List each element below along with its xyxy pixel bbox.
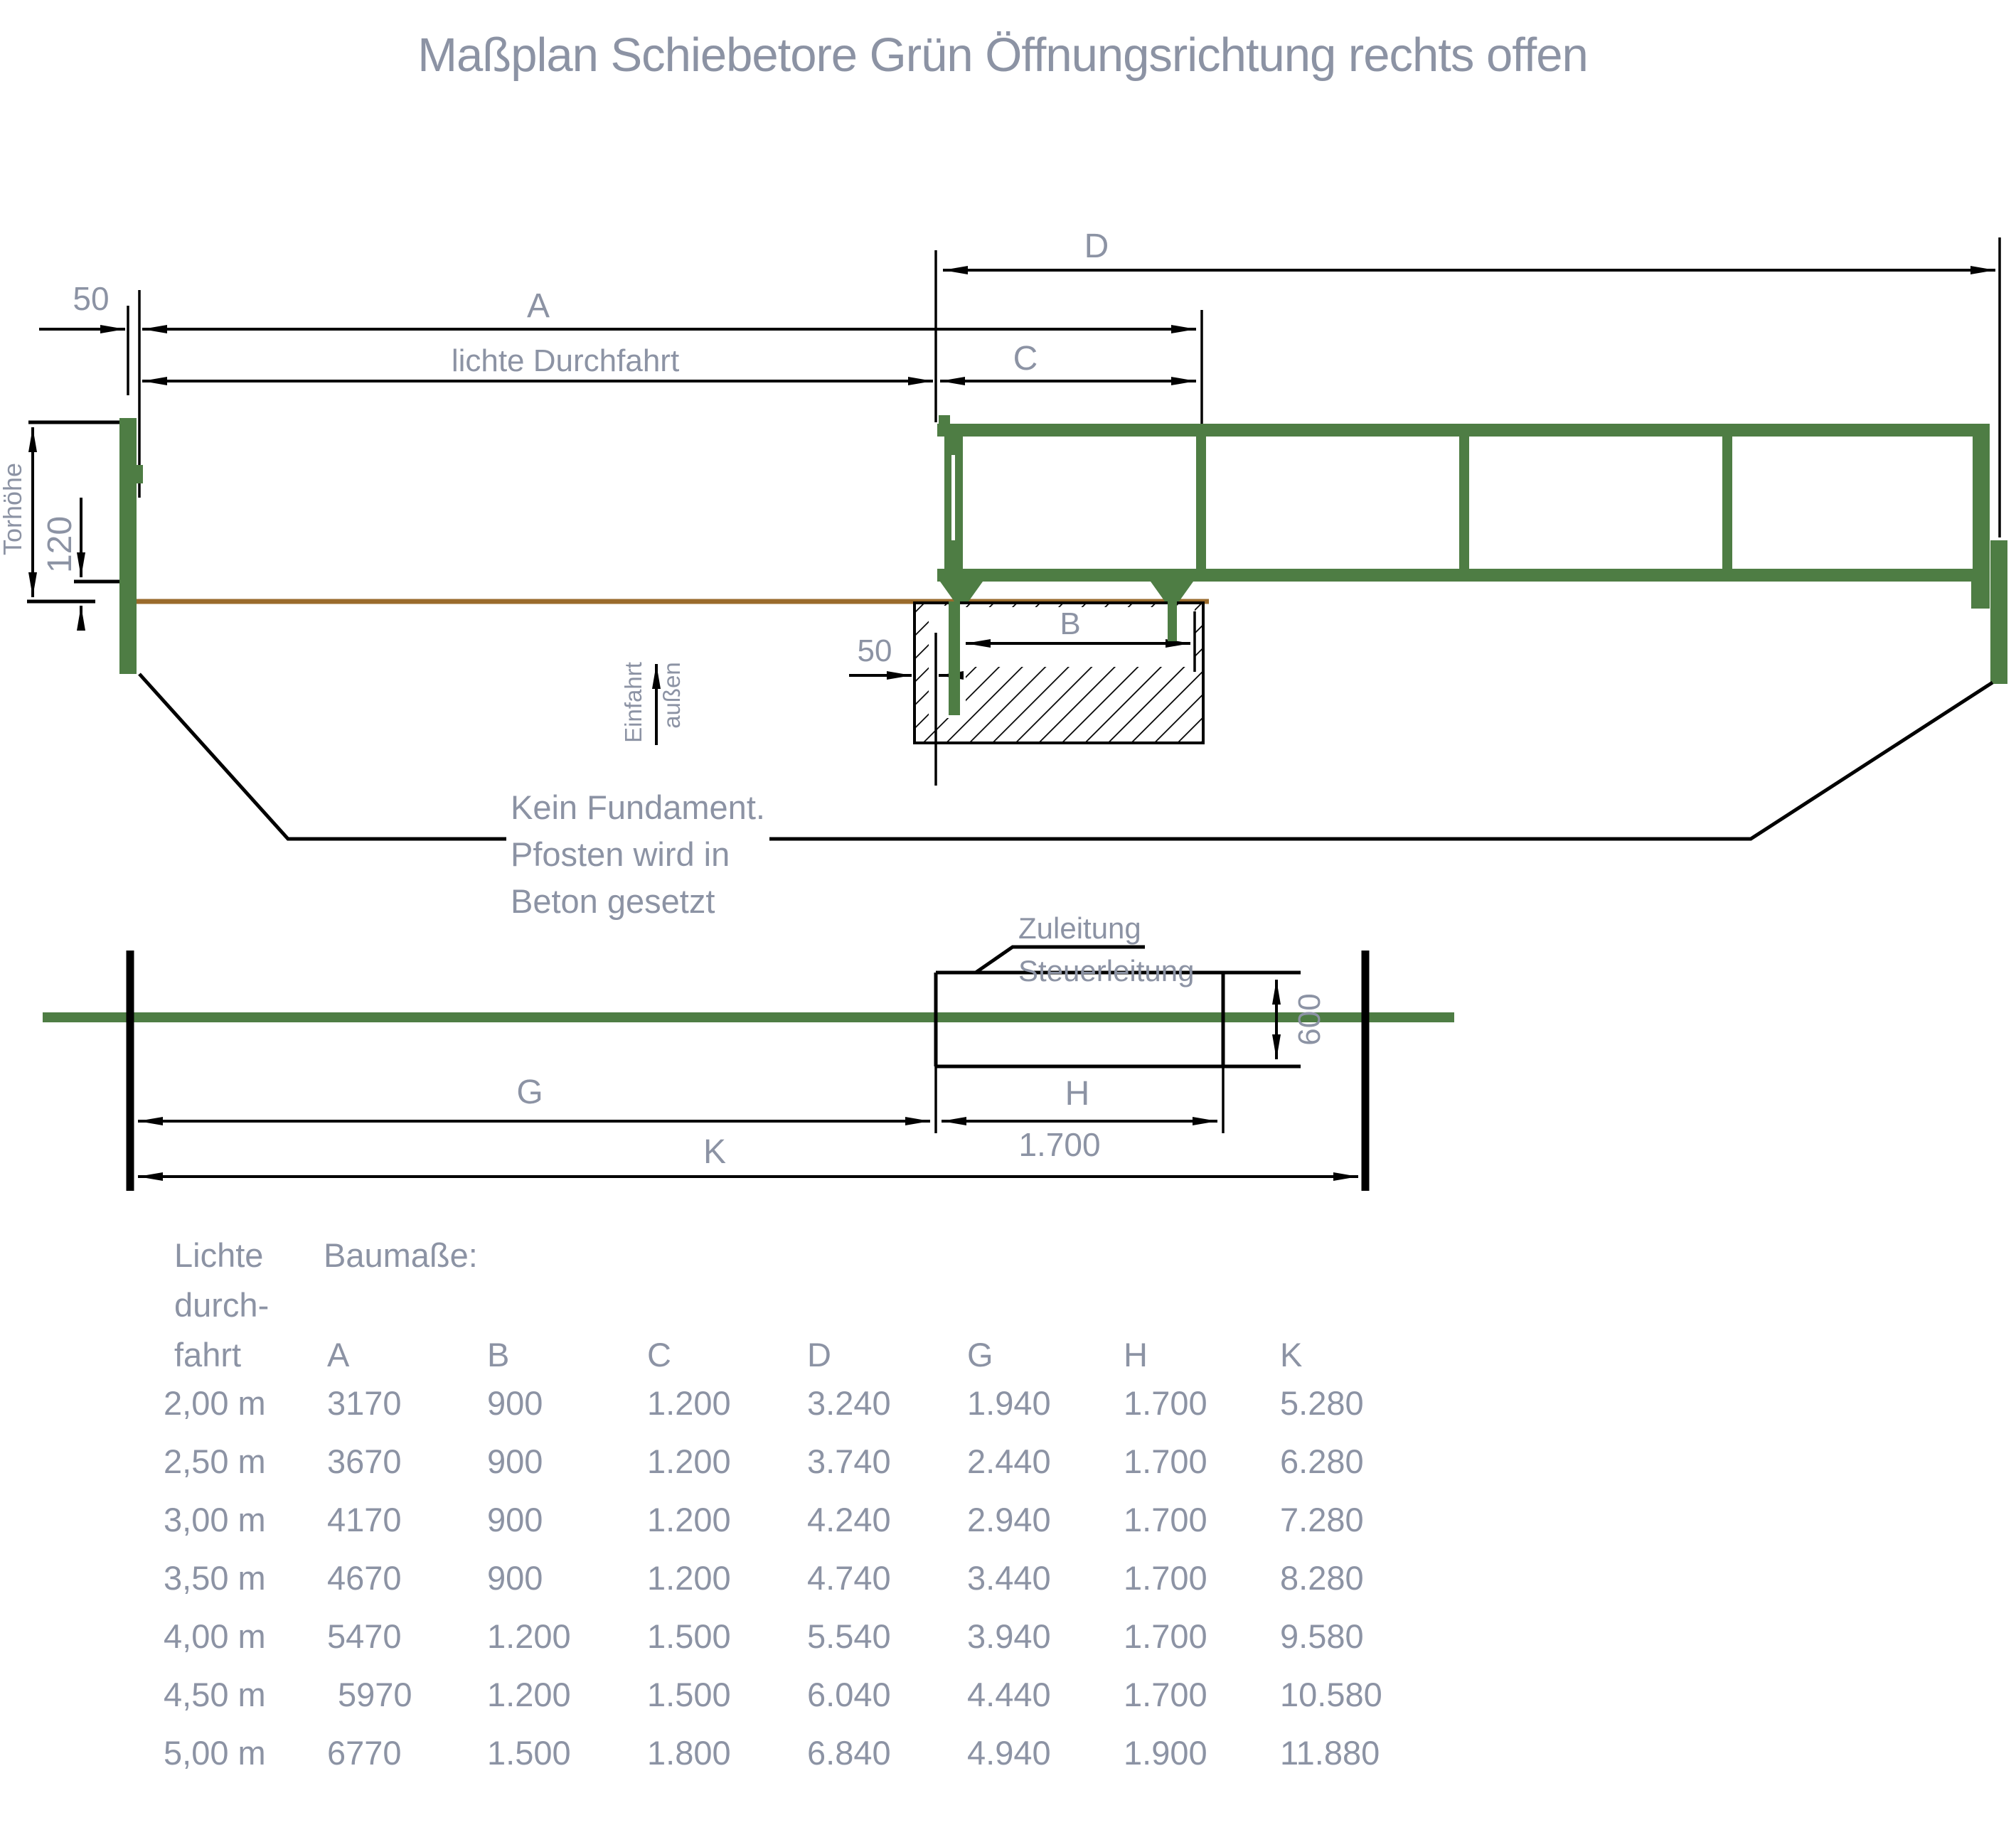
dim-label-50-post: 50 — [73, 280, 109, 317]
cell: 4670 — [327, 1559, 402, 1597]
cell: 1.700 — [1124, 1501, 1207, 1538]
gate-left-cap — [939, 415, 950, 425]
cell: 3.240 — [807, 1384, 891, 1422]
cell: 4.440 — [967, 1676, 1051, 1713]
gate-divider-1 — [1196, 437, 1206, 569]
cell: 3,50 m — [164, 1559, 266, 1597]
cell: 1.200 — [487, 1617, 571, 1655]
table-row: 3,00 m 4170 900 1.200 4.240 2.940 1.700 … — [164, 1501, 1364, 1538]
cell: 900 — [487, 1501, 543, 1538]
table-row-header-1: Lichte — [174, 1236, 263, 1274]
cell: 1.800 — [647, 1734, 731, 1772]
dim-label-g: G — [516, 1074, 543, 1111]
gate-bottom-rail — [937, 569, 1990, 582]
dim-label-c: C — [1013, 340, 1038, 378]
cell: 3,00 m — [164, 1501, 266, 1538]
plan-view: Zuleitung Steuerleitung 600 G H 1.700 K — [43, 911, 1454, 1191]
label-einfahrt: Einfahrt — [620, 662, 646, 743]
cell: 5,00 m — [164, 1734, 266, 1772]
gate-left-foot — [940, 582, 983, 601]
side-view: D 50 A lichte Durchfahrt C Torhöhe 120 — [0, 227, 2007, 920]
table-col-b: B — [487, 1336, 509, 1374]
cell: 1.700 — [1124, 1559, 1207, 1597]
cell: 2,50 m — [164, 1442, 266, 1480]
cell: 8.280 — [1280, 1559, 1364, 1597]
table-row: 3,50 m 4670 900 1.200 4.740 3.440 1.700 … — [164, 1559, 1364, 1597]
left-guide-post — [119, 418, 137, 674]
cell: 900 — [487, 1384, 543, 1422]
table-col-c: C — [647, 1336, 671, 1374]
gate-divider-2 — [1459, 437, 1469, 569]
dim-label-a: A — [527, 287, 550, 325]
dim-label-clear-width: lichte Durchfahrt — [452, 343, 679, 378]
cell: 1.700 — [1124, 1442, 1207, 1480]
cell: 4.740 — [807, 1559, 891, 1597]
label-steuerleitung: Steuerleitung — [1018, 954, 1195, 987]
dimension-plan-drawing: Maßplan Schiebetore Grün Öffnungsrichtun… — [0, 0, 2016, 1847]
gate-top-rail — [937, 424, 1990, 437]
cell: 1.200 — [647, 1442, 731, 1480]
cell: 9.580 — [1280, 1617, 1364, 1655]
cell: 6.280 — [1280, 1442, 1364, 1480]
cell: 1.200 — [647, 1384, 731, 1422]
table-row: 5,00 m 6770 1.500 1.800 6.840 4.940 1.90… — [164, 1734, 1380, 1772]
cell: 1.500 — [487, 1734, 571, 1772]
table-row: 4,00 m 5470 1.200 1.500 5.540 3.940 1.70… — [164, 1617, 1364, 1655]
table-col-k: K — [1280, 1336, 1302, 1374]
catch-post — [1990, 540, 2007, 684]
dim-label-h: H — [1065, 1075, 1090, 1113]
gate-left-rod — [949, 601, 960, 715]
table-col-g: G — [967, 1336, 993, 1374]
dim-label-600: 600 — [1292, 993, 1327, 1045]
gate-drive-foot — [1151, 582, 1193, 601]
cell: 5470 — [327, 1617, 402, 1655]
table-row: 2,00 m 3170 900 1.200 3.240 1.940 1.700 … — [164, 1384, 1364, 1422]
table-col-a: A — [327, 1336, 350, 1374]
table-row: 4,50 m 5970 1.200 1.500 6.040 4.440 1.70… — [164, 1676, 1382, 1713]
dim-label-h-value: 1.700 — [1018, 1126, 1100, 1163]
cell: 7.280 — [1280, 1501, 1364, 1538]
cell: 4170 — [327, 1501, 402, 1538]
dim-label-k: K — [703, 1133, 726, 1171]
cell: 1.200 — [487, 1676, 571, 1713]
cell: 3170 — [327, 1384, 402, 1422]
cell: 2.440 — [967, 1442, 1051, 1480]
cell: 900 — [487, 1442, 543, 1480]
gate-drive-rod — [1168, 601, 1177, 641]
table-row: 2,50 m 3670 900 1.200 3.740 2.440 1.700 … — [164, 1442, 1364, 1480]
cell: 1.700 — [1124, 1676, 1207, 1713]
cell: 6770 — [327, 1734, 402, 1772]
cell: 6.840 — [807, 1734, 891, 1772]
cell: 2,00 m — [164, 1384, 266, 1422]
page-title: Maßplan Schiebetore Grün Öffnungsrichtun… — [417, 28, 1588, 82]
cell: 4.940 — [967, 1734, 1051, 1772]
cell: 1.900 — [1124, 1734, 1207, 1772]
label-zuleitung: Zuleitung — [1018, 911, 1141, 945]
table-group-header: Baumaße: — [324, 1236, 478, 1274]
gate-right-upright — [1973, 424, 1990, 582]
table-col-d: D — [807, 1336, 831, 1374]
dim-label-d: D — [1084, 227, 1109, 265]
note-line-1: Kein Fundament. — [511, 788, 765, 826]
dimension-plan-page: Maßplan Schiebetore Grün Öffnungsrichtun… — [0, 0, 2016, 1847]
cell: 10.580 — [1280, 1676, 1382, 1713]
cell: 4,50 m — [164, 1676, 266, 1713]
cell: 3.940 — [967, 1617, 1051, 1655]
cell: 3670 — [327, 1442, 402, 1480]
cell: 3.440 — [967, 1559, 1051, 1597]
cell: 4.240 — [807, 1501, 891, 1538]
cell: 1.700 — [1124, 1617, 1207, 1655]
plan-gate-line — [43, 1012, 1454, 1022]
gate-end-stop — [1971, 582, 1990, 609]
note-line-3: Beton gesetzt — [511, 882, 715, 920]
cell: 1.500 — [647, 1676, 731, 1713]
cell: 6.040 — [807, 1676, 891, 1713]
note-line-2: Pfosten wird in — [511, 835, 730, 873]
cell: 1.200 — [647, 1559, 731, 1597]
table-row-header-2: durch- — [174, 1286, 269, 1324]
cell: 2.940 — [967, 1501, 1051, 1538]
cell: 5.540 — [807, 1617, 891, 1655]
dim-label-b: B — [1060, 606, 1080, 641]
cell: 900 — [487, 1559, 543, 1597]
left-post-latch — [137, 465, 143, 483]
gate-divider-3 — [1722, 437, 1732, 569]
cell: 1.700 — [1124, 1384, 1207, 1422]
dim-label-ground-clearance: 120 — [41, 516, 79, 573]
table-col-h: H — [1124, 1336, 1148, 1374]
cell: 5970 — [338, 1676, 412, 1713]
cell: 5.280 — [1280, 1384, 1364, 1422]
cell: 1.200 — [647, 1501, 731, 1538]
cell: 11.880 — [1280, 1734, 1380, 1772]
foundation-post-slot — [929, 606, 966, 718]
dimension-table: Lichte Baumaße: durch- fahrt A B C D G H… — [164, 1236, 1382, 1772]
label-aussen: außen — [658, 662, 685, 729]
cell: 4,00 m — [164, 1617, 266, 1655]
cell: 1.500 — [647, 1617, 731, 1655]
cell: 3.740 — [807, 1442, 891, 1480]
dim-label-50-foundation: 50 — [858, 633, 892, 668]
note-leader-left — [139, 674, 506, 839]
cell: 1.940 — [967, 1384, 1051, 1422]
dim-label-gate-height: Torhöhe — [0, 463, 27, 555]
table-row-header-3: fahrt — [174, 1336, 241, 1374]
gate-left-upright-slit — [951, 455, 955, 540]
